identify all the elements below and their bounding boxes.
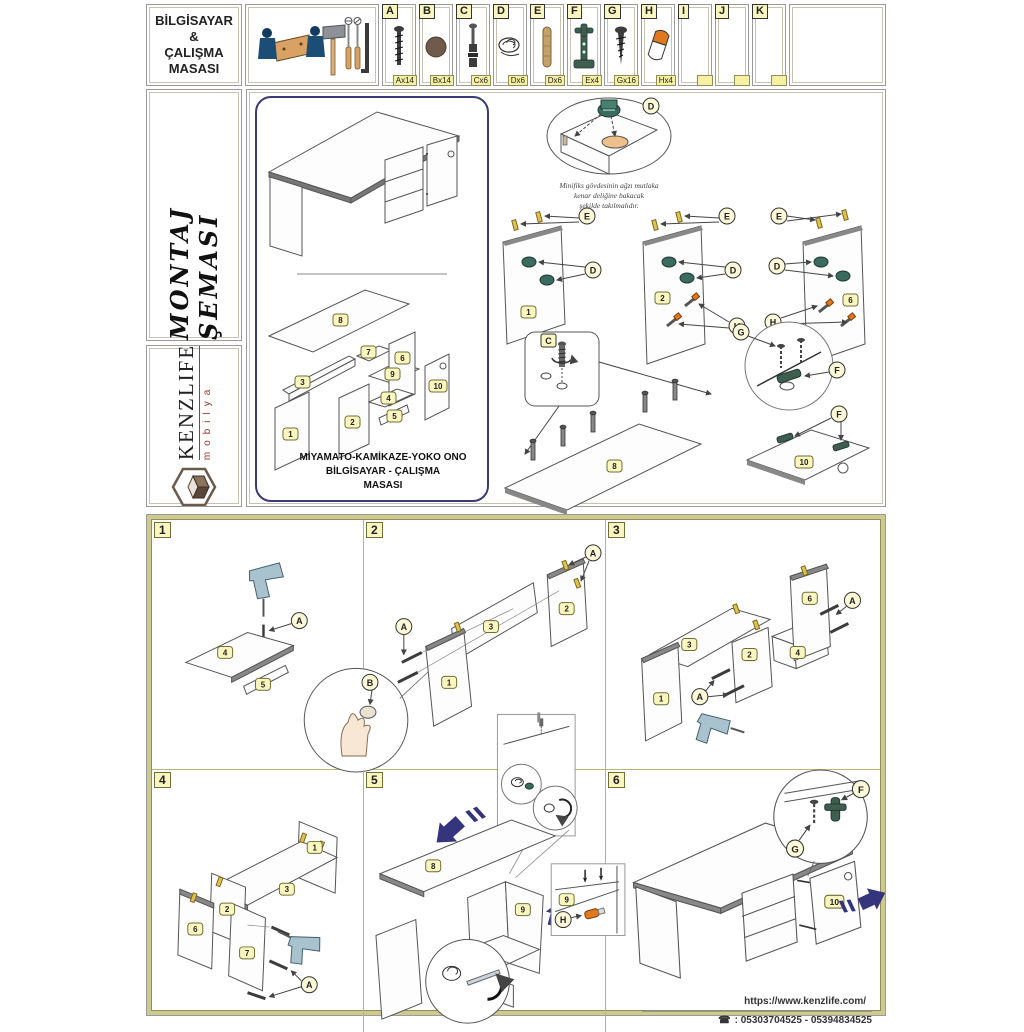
svg-text:E: E — [584, 212, 590, 222]
product-title-box: BİLGİSAYAR & ÇALIŞMA MASASI — [146, 4, 242, 86]
part-letter: K — [752, 4, 768, 19]
contact-footer: https://www.kenzlife.com/ ☎ : 0530370452… — [642, 996, 872, 1026]
title-line-4: MASASI — [169, 61, 220, 77]
svg-text:4: 4 — [223, 648, 228, 657]
svg-text:2: 2 — [564, 605, 569, 614]
svg-text:8: 8 — [612, 462, 617, 471]
part-qty: Hx4 — [656, 75, 676, 86]
minifix-detail-d: D Minifiks gövdesinin ağzı mutlaka kenar… — [547, 98, 671, 210]
part-letter: D — [493, 4, 509, 19]
tools-illustration-icon — [251, 13, 373, 81]
title-line-1: BİLGİSAYAR — [155, 13, 233, 29]
svg-text:6: 6 — [808, 594, 813, 603]
assembly-details-drawing: D Minifiks gövdesinin ağzı mutlaka kenar… — [489, 94, 885, 504]
step-number: 4 — [154, 772, 171, 788]
part-qty: Dx6 — [508, 75, 528, 86]
part-qty: Bx14 — [430, 75, 454, 86]
part-letter: C — [456, 4, 472, 19]
step-3-drawing: A A 1 3 2 4 6 — [606, 520, 880, 769]
svg-text:10: 10 — [830, 897, 840, 907]
panels — [426, 559, 587, 726]
phone-numbers: : 05303704525 - 05394834525 — [735, 1015, 872, 1026]
part-qty: Cx6 — [471, 75, 491, 86]
svg-text:8: 8 — [338, 316, 343, 325]
svg-text:1: 1 — [313, 843, 318, 852]
part-box-a: A Ax14 — [382, 4, 416, 86]
svg-text:D: D — [730, 266, 737, 276]
svg-text:D: D — [774, 262, 781, 272]
product-name-line-3: MASASI — [364, 480, 403, 491]
part-box-k: K — [752, 4, 786, 86]
step-number: 5 — [366, 772, 383, 788]
part-qty: Ex4 — [582, 75, 602, 86]
left-sidebar: MONTAJ ŞEMASI KENZLIFE mobilya — [146, 89, 242, 507]
svg-text:5: 5 — [261, 680, 266, 689]
step-4-drawing: A 1 3 2 6 7 — [152, 770, 363, 1032]
step-5-cell: 5 — [364, 770, 606, 1032]
title-line-2: & — [189, 29, 198, 45]
panels — [186, 633, 293, 695]
svg-text:A: A — [849, 596, 856, 606]
brand-logo-box: KENZLIFE mobilya — [146, 345, 242, 507]
part-box-b: B Bx14 — [419, 4, 453, 86]
svg-text:2: 2 — [350, 418, 355, 427]
cap-icon — [645, 27, 671, 67]
svg-text:H: H — [560, 915, 566, 925]
cap-press-detail-b: B — [304, 668, 429, 772]
footer-divider — [642, 1011, 872, 1012]
svg-text:A: A — [306, 980, 313, 990]
svg-text:A: A — [590, 548, 597, 558]
step-6-cell: 6 10 — [606, 770, 880, 1032]
part-qty: Ax14 — [393, 75, 417, 86]
svg-text:C: C — [545, 336, 552, 346]
svg-text:9: 9 — [390, 370, 395, 379]
part-box-e: E Dx6 — [530, 4, 564, 86]
parts-header-row: BİLGİSAYAR & ÇALIŞMA MASASI — [146, 4, 886, 86]
svg-text:6: 6 — [400, 354, 405, 363]
step-3-cell: 3 — [606, 520, 880, 770]
part-qty: Gx16 — [614, 75, 639, 86]
tools-illustration-box — [245, 4, 379, 86]
svg-text:4: 4 — [386, 394, 391, 403]
part-box-i: I — [678, 4, 712, 86]
minifix-note-line-2: kenar deliğine bakacak — [574, 191, 645, 200]
drill-icon — [250, 563, 284, 617]
step-number: 6 — [608, 772, 625, 788]
svg-text:7: 7 — [245, 949, 250, 958]
brand-logo: KENZLIFE mobilya — [151, 351, 237, 501]
drill-icon — [689, 707, 746, 759]
svg-text:G: G — [737, 328, 744, 338]
cam-lock-icon — [495, 32, 525, 62]
step-number: 2 — [366, 522, 383, 538]
svg-text:6: 6 — [193, 925, 198, 934]
overview-band: MONTAJ ŞEMASI KENZLIFE mobilya — [146, 89, 886, 507]
part-box-d: D Dx6 — [493, 4, 527, 86]
svg-text:A: A — [697, 692, 704, 702]
svg-text:8: 8 — [431, 862, 436, 871]
svg-text:10: 10 — [434, 382, 443, 391]
part-box-c: C Cx6 — [456, 4, 490, 86]
kenzlife-hexagon-icon — [171, 466, 217, 507]
step-6-drawing: 10 F G — [606, 770, 880, 1032]
svg-text:E: E — [724, 212, 730, 222]
step-5-drawing: 8 9 — [364, 770, 605, 1032]
svg-text:2: 2 — [660, 294, 665, 303]
product-name-line-2: BİLGİSAYAR - ÇALIŞMA — [326, 464, 440, 477]
part-qty — [734, 75, 750, 86]
part-letter: B — [419, 4, 435, 19]
svg-text:9: 9 — [521, 906, 526, 915]
assembled-desk-drawing — [269, 112, 459, 256]
svg-text:B: B — [367, 678, 374, 688]
part-box-j: J — [715, 4, 749, 86]
empty-spare-box — [789, 4, 886, 86]
step-number: 1 — [154, 522, 171, 538]
part-letter: A — [382, 4, 398, 19]
cam-turn-detail — [426, 939, 510, 1023]
phone-icon: ☎ — [718, 1015, 730, 1026]
panel-2-detail: E D H 2 — [643, 208, 745, 364]
title-line-3: ÇALIŞMA — [164, 45, 223, 61]
svg-text:G: G — [791, 844, 798, 855]
part-qty — [771, 75, 787, 86]
svg-text:1: 1 — [447, 678, 452, 687]
panel-10-detail: F 10 — [747, 406, 869, 485]
step-number: 3 — [608, 522, 625, 538]
part-letter: J — [715, 4, 729, 19]
part-letter: F — [567, 4, 582, 19]
svg-text:3: 3 — [687, 641, 692, 650]
product-overview-drawing: 8 3 1 2 7 9 6 4 5 10 MİYAMATO-KAMİKAZE-Y… — [257, 98, 483, 496]
assembly-steps-section: 1 4 5 — [146, 514, 886, 1016]
svg-text:D: D — [590, 266, 597, 276]
schema-title-box: MONTAJ ŞEMASI — [146, 89, 242, 341]
website-link[interactable]: https://www.kenzlife.com/ — [642, 996, 872, 1009]
svg-text:F: F — [836, 410, 842, 420]
panel-1-detail: E D 1 — [503, 208, 601, 344]
screws-a — [398, 652, 422, 682]
svg-text:F: F — [834, 366, 840, 376]
svg-text:4: 4 — [795, 649, 800, 658]
brand-name: KENZLIFE — [175, 345, 199, 460]
svg-text:1: 1 — [659, 695, 664, 704]
cover-cap-icon — [424, 35, 448, 59]
svg-text:A: A — [296, 616, 303, 626]
svg-text:A: A — [401, 622, 408, 632]
part-letter: H — [641, 4, 657, 19]
screw-icon — [389, 23, 409, 71]
brand-subtitle: mobilya — [202, 345, 213, 460]
svg-text:9: 9 — [564, 896, 569, 905]
part-letter: E — [530, 4, 545, 19]
part-letter: G — [604, 4, 621, 19]
minifix-bolt-icon — [465, 22, 481, 72]
part-qty — [697, 75, 713, 86]
part-box-f: F Ex4 — [567, 4, 601, 86]
part-box-h: H Hx4 — [641, 4, 675, 86]
wooden-dowel-icon — [540, 24, 554, 70]
steps-grid: 1 4 5 — [152, 520, 880, 1010]
part-qty: Dx6 — [545, 75, 565, 86]
svg-text:D: D — [648, 102, 655, 112]
hinge-icon — [571, 22, 597, 72]
assembly-sheet: BİLGİSAYAR & ÇALIŞMA MASASI — [146, 2, 886, 1020]
svg-text:E: E — [776, 212, 782, 222]
step-4-cell: 4 — [152, 770, 364, 1032]
svg-text:6: 6 — [848, 296, 853, 305]
svg-text:3: 3 — [489, 623, 494, 632]
part-box-g: G Gx16 — [604, 4, 638, 86]
svg-text:3: 3 — [300, 378, 305, 387]
svg-text:1: 1 — [288, 430, 293, 439]
svg-text:1: 1 — [526, 308, 531, 317]
part-letter: I — [678, 4, 689, 19]
schema-title: MONTAJ ŞEMASI — [165, 90, 223, 340]
svg-text:2: 2 — [225, 905, 230, 914]
overview-main-box: 8 3 1 2 7 9 6 4 5 10 MİYAMATO-KAMİKAZE-Y… — [246, 89, 886, 507]
product-overview-panel: 8 3 1 2 7 9 6 4 5 10 MİYAMATO-KAMİKAZE-Y… — [255, 96, 489, 502]
svg-text:10: 10 — [800, 458, 809, 467]
svg-text:2: 2 — [747, 651, 752, 660]
minifix-note-line-1: Minifiks gövdesinin ağzı mutlaka — [558, 181, 659, 190]
product-name-line-1: MİYAMATO-KAMİKAZE-YOKO ONO — [299, 450, 466, 463]
svg-text:3: 3 — [285, 885, 290, 894]
svg-text:7: 7 — [366, 348, 371, 357]
svg-text:F: F — [858, 785, 864, 796]
screw-icon — [611, 25, 631, 69]
svg-text:5: 5 — [392, 412, 397, 421]
